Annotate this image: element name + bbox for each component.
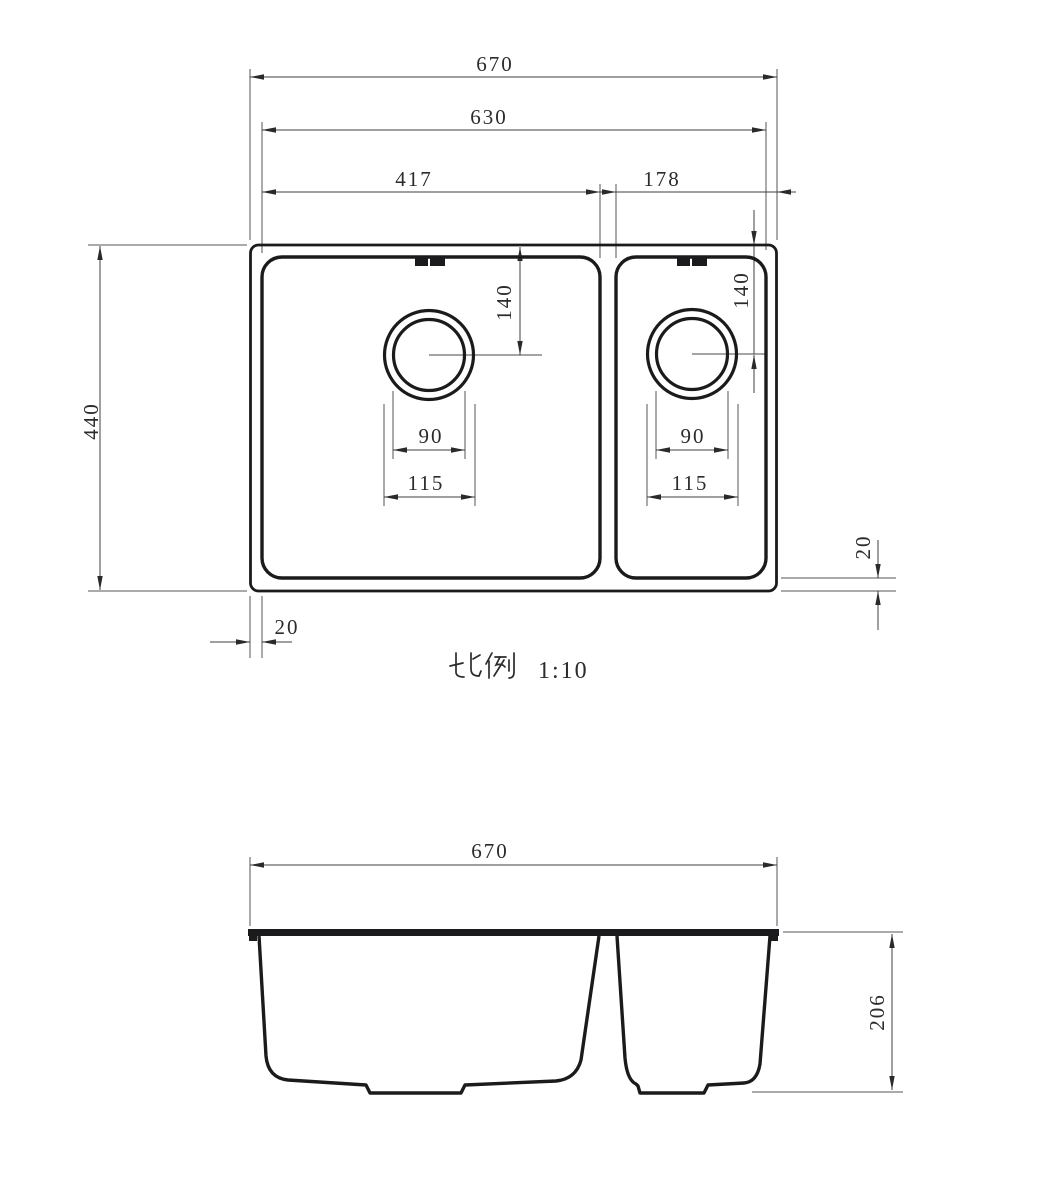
scale-label-hanzi xyxy=(450,653,514,678)
dim-left-bowl-width: 417 xyxy=(395,167,433,191)
dim-right-drain-outer: 115 xyxy=(672,471,709,495)
front-view-dimension-lines xyxy=(250,865,892,1090)
front-left-bowl-profile xyxy=(259,936,599,1093)
dim-left-drain-inner: 90 xyxy=(419,424,444,448)
dim-rim-right-bottom: 20 xyxy=(851,535,875,560)
front-view: 670 206 xyxy=(248,839,903,1093)
front-right-bowl-profile xyxy=(617,936,770,1093)
scale-note: 1:10 xyxy=(450,653,589,684)
sink-drawing-svg: 670 630 417 178 140 140 90 115 90 115 44… xyxy=(0,0,1039,1177)
front-view-sink-body xyxy=(248,929,779,1093)
technical-drawing-page: 670 630 417 178 140 140 90 115 90 115 44… xyxy=(0,0,1039,1177)
left-bowl-opening xyxy=(262,257,600,578)
front-view-extension-lines xyxy=(250,857,903,1092)
dim-right-drain-inner: 90 xyxy=(681,424,706,448)
top-view: 670 630 417 178 140 140 90 115 90 115 44… xyxy=(79,52,896,658)
dim-left-drain-outer: 115 xyxy=(408,471,445,495)
top-view-extension-lines xyxy=(88,69,896,658)
left-bowl-overflow-notch xyxy=(430,257,445,266)
dim-right-bowl-width: 178 xyxy=(643,167,681,191)
right-bowl-overflow-notch xyxy=(692,257,707,266)
front-rim-bar xyxy=(248,929,779,936)
dim-right-drain-offset: 140 xyxy=(729,271,753,309)
scale-ratio: 1:10 xyxy=(538,658,589,684)
front-rim-lip-left xyxy=(249,936,257,941)
right-bowl-overflow-notch xyxy=(677,257,690,266)
dim-opening-width: 630 xyxy=(470,105,508,129)
left-bowl-overflow-notch xyxy=(415,257,428,266)
top-view-dimension-lines xyxy=(100,77,878,642)
top-view-dimension-texts: 670 630 417 178 140 140 90 115 90 115 44… xyxy=(79,52,875,639)
dim-overall-width: 670 xyxy=(476,52,514,76)
dim-left-drain-offset: 140 xyxy=(492,283,516,321)
dim-rim-left: 20 xyxy=(275,615,300,639)
dim-overall-depth: 440 xyxy=(79,402,103,440)
dim-front-overall-width: 670 xyxy=(471,839,509,863)
dim-front-bowl-depth: 206 xyxy=(865,993,889,1031)
